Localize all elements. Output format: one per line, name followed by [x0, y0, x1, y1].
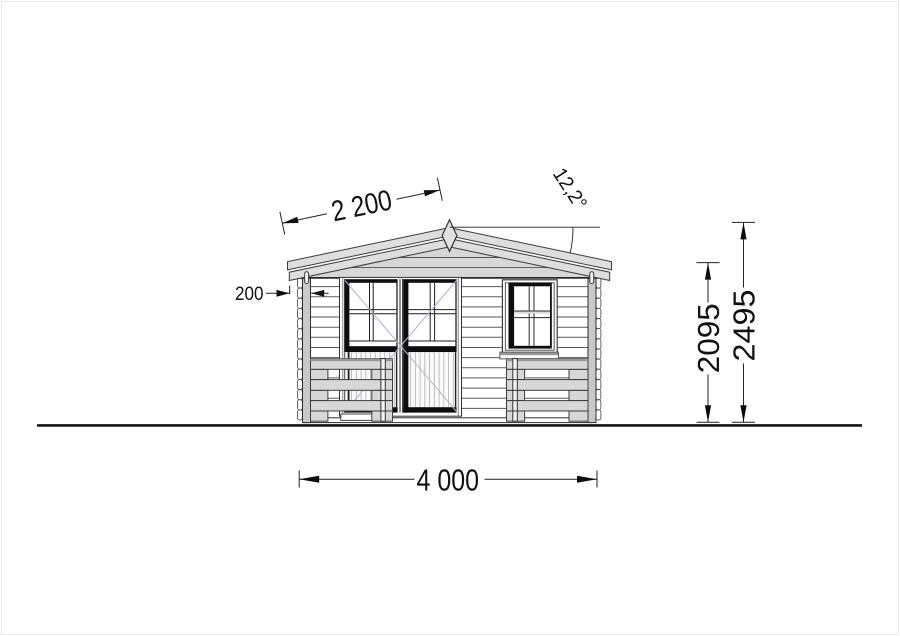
svg-text:200: 200 — [235, 283, 264, 305]
svg-text:4 000: 4 000 — [417, 462, 480, 497]
svg-text:2095: 2095 — [691, 303, 726, 373]
svg-text:2495: 2495 — [727, 290, 762, 362]
